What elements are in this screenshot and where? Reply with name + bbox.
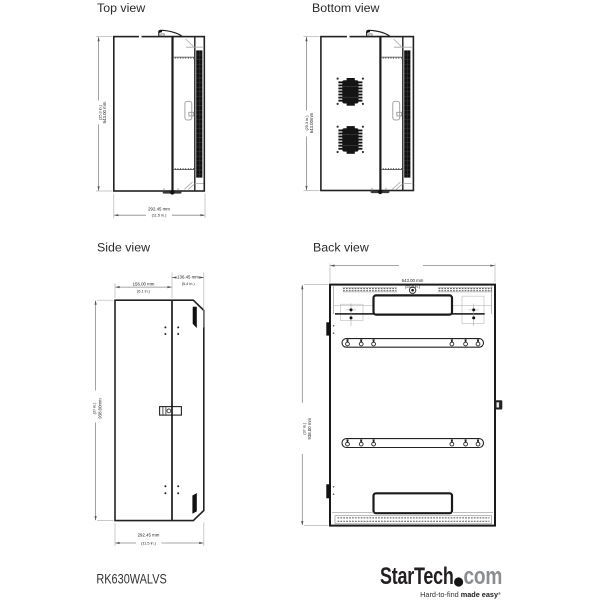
svg-text:(11.5 in.): (11.5 in.) <box>141 542 156 546</box>
svg-text:(11.5 in.): (11.5 in.) <box>152 214 167 218</box>
svg-text:(37 in.): (37 in.) <box>93 402 97 415</box>
svg-text:(6.1 in.): (6.1 in.) <box>137 290 151 294</box>
svg-text:(25.3 in.): (25.3 in.) <box>99 104 103 120</box>
svg-text:RK630WALVS: RK630WALVS <box>96 571 166 587</box>
svg-text:643.00mm: 643.00mm <box>309 112 314 133</box>
svg-text:136.45 mm: 136.45 mm <box>177 274 199 279</box>
svg-text:Side view: Side view <box>97 240 150 254</box>
svg-text:292.45 mm: 292.45 mm <box>138 532 160 537</box>
svg-text:Top view: Top view <box>97 1 145 15</box>
svg-text:Back view: Back view <box>313 240 369 254</box>
svg-text:938.00mm: 938.00mm <box>97 398 102 419</box>
svg-text:292.45 mm: 292.45 mm <box>148 206 170 211</box>
svg-text:643.00 mm: 643.00 mm <box>402 278 424 283</box>
svg-text:com: com <box>463 562 502 590</box>
svg-text:643.00 mm: 643.00 mm <box>102 101 107 123</box>
svg-text:StarTech: StarTech <box>380 562 454 589</box>
svg-text:938.00 mm: 938.00 mm <box>307 417 312 439</box>
svg-text:Hard-to-find made easy®: Hard-to-find made easy® <box>420 590 501 599</box>
svg-text:(37 in.): (37 in.) <box>303 422 307 435</box>
svg-text:(5.4 in.): (5.4 in.) <box>182 282 196 286</box>
svg-text:(25.3 in.): (25.3 in.) <box>405 285 421 289</box>
svg-text:156.00 mm: 156.00 mm <box>133 282 155 287</box>
svg-text:(25.3 in.): (25.3 in.) <box>305 115 309 131</box>
svg-text:Bottom view: Bottom view <box>312 1 380 15</box>
